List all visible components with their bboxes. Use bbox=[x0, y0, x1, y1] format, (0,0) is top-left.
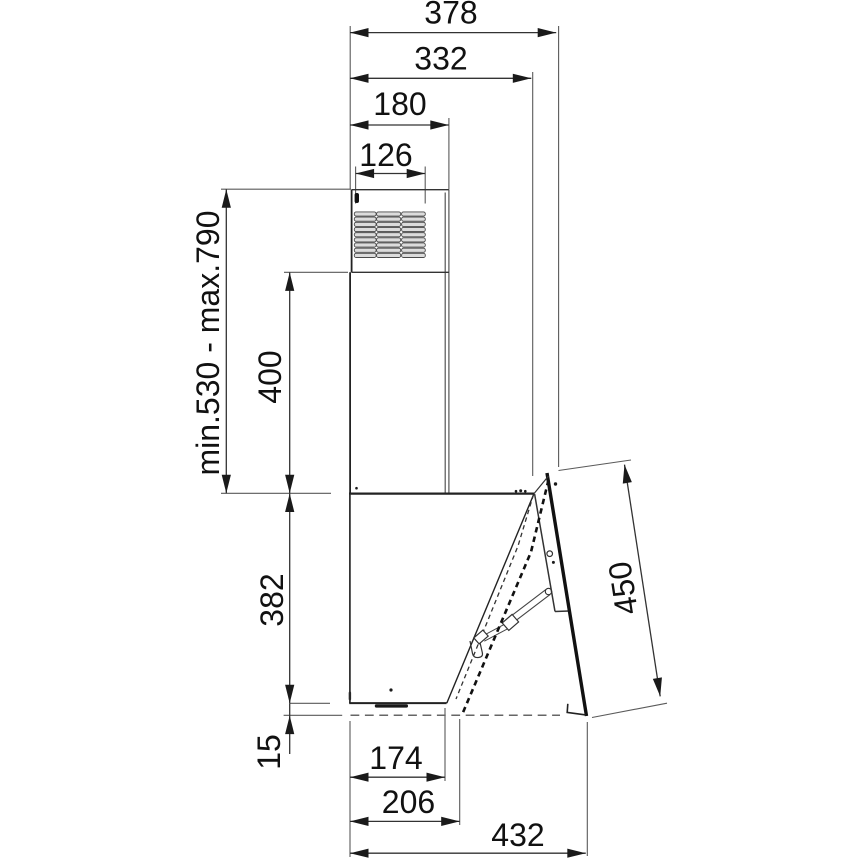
svg-text:126: 126 bbox=[359, 137, 412, 173]
svg-text:332: 332 bbox=[414, 41, 467, 77]
svg-text:15: 15 bbox=[251, 734, 287, 770]
svg-text:378: 378 bbox=[424, 0, 477, 31]
svg-text:min.530 - max.790: min.530 - max.790 bbox=[190, 210, 226, 475]
svg-text:432: 432 bbox=[491, 817, 544, 853]
svg-text:206: 206 bbox=[382, 784, 435, 820]
svg-text:382: 382 bbox=[254, 573, 290, 626]
svg-text:400: 400 bbox=[252, 350, 288, 403]
svg-text:174: 174 bbox=[369, 740, 422, 776]
svg-text:180: 180 bbox=[373, 86, 426, 122]
